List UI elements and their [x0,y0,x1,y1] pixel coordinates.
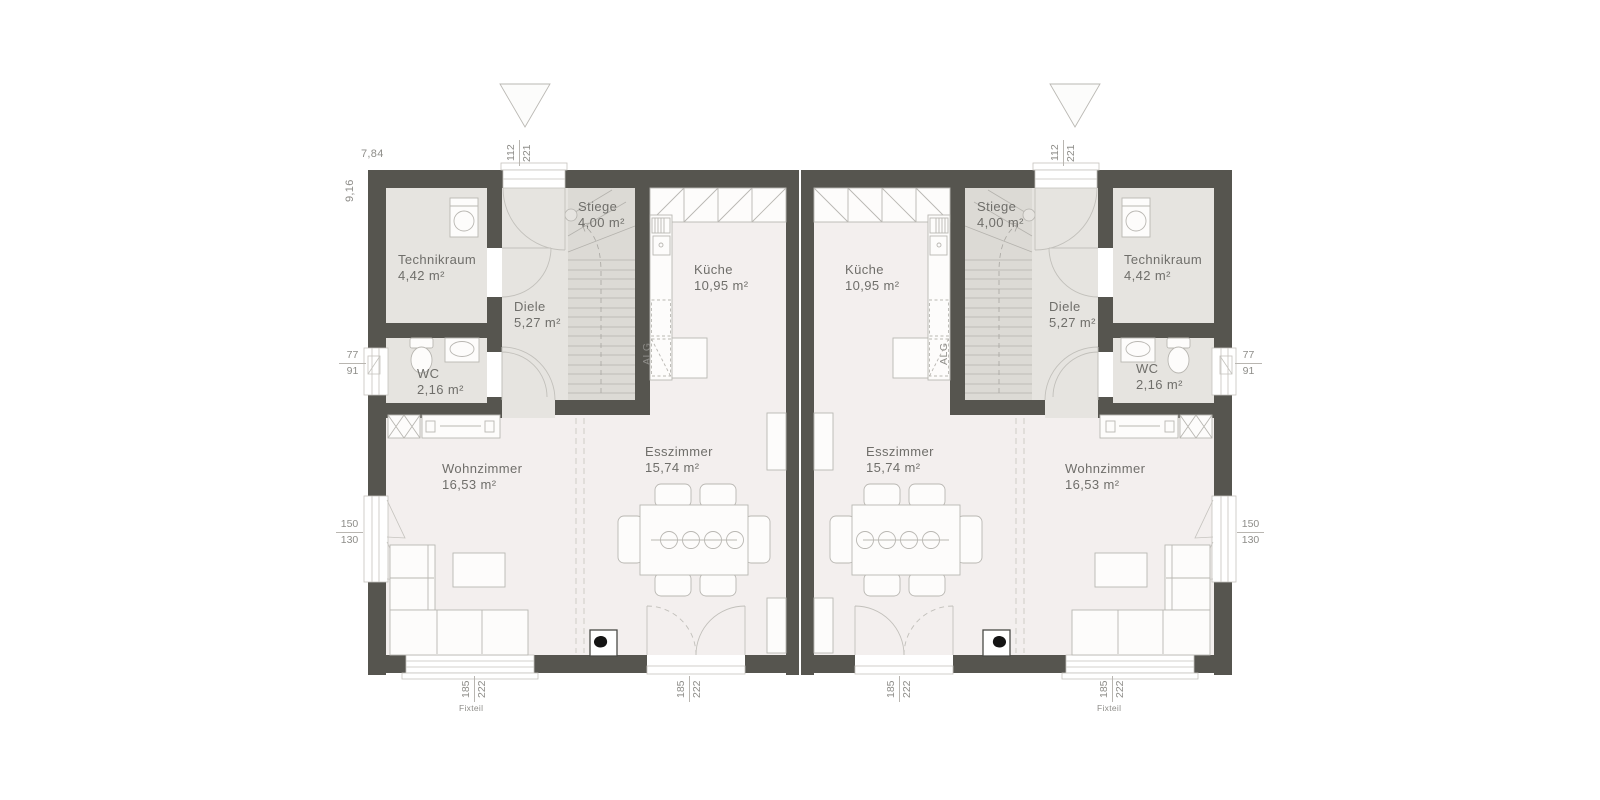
kitchen-counter-label-right: ALG [938,331,950,365]
room-name: Stiege [578,199,625,215]
entrance-marker-triangle-left [500,84,550,127]
room-name: Esszimmer [866,444,934,460]
room-area: 10,95 m² [694,278,749,294]
room-label-stiege-left: Stiege 4,00 m² [578,199,625,230]
fixed-window-note-right: Fixteil [1097,703,1121,713]
room-name: WC [1136,361,1183,377]
dim-terrace-door-left: 185 222 [676,672,703,706]
room-area: 4,42 m² [398,268,476,284]
unit-left [364,163,799,679]
room-name: Esszimmer [645,444,713,460]
room-name: Wohnzimmer [442,461,522,477]
room-area: 5,27 m² [1049,315,1096,331]
room-label-stiege-right: Stiege 4,00 m² [977,199,1024,230]
floor-plan-graphics [0,0,1600,800]
room-area: 4,00 m² [977,215,1024,231]
room-label-technikraum-left: Technikraum 4,42 m² [398,252,476,283]
dim-fixed-window-right: 185 222 [1099,672,1126,706]
dim-entrance-left: 112 221 [506,136,533,170]
dim-divider [689,676,690,702]
unit-right [801,163,1236,679]
dim-wc-window-left: 77 91 [339,349,366,378]
room-name: Technikraum [1124,252,1202,268]
room-area: 2,16 m² [417,382,464,398]
room-name: Küche [694,262,749,278]
room-label-technikraum-right: Technikraum 4,42 m² [1124,252,1202,283]
dim-divider [1237,532,1264,533]
dim-divider [519,140,520,166]
room-area: 10,95 m² [845,278,900,294]
room-area: 15,74 m² [645,460,713,476]
dim-terrace-door-right: 185 222 [886,672,913,706]
dim-divider [1235,363,1262,364]
room-area: 4,00 m² [578,215,625,231]
floor-plan-page: Technikraum 4,42 m² WC 2,16 m² Diele 5,2… [0,0,1600,800]
dim-divider [1112,676,1113,702]
room-label-kueche-left: Küche 10,95 m² [694,262,749,293]
dim-unit-depth: 9,16 [344,164,356,202]
dim-divider [899,676,900,702]
dim-divider [336,532,363,533]
room-area: 2,16 m² [1136,377,1183,393]
room-area: 15,74 m² [866,460,934,476]
room-label-esszimmer-right: Esszimmer 15,74 m² [866,444,934,475]
room-name: Diele [514,299,561,315]
room-area: 16,53 m² [442,477,522,493]
room-label-esszimmer-left: Esszimmer 15,74 m² [645,444,713,475]
room-name: Technikraum [398,252,476,268]
room-area: 16,53 m² [1065,477,1145,493]
room-label-wc-left: WC 2,16 m² [417,366,464,397]
dim-fixed-window-left: 185 222 [461,672,488,706]
kitchen-counter-label-left: ALG [641,331,653,365]
room-name: Diele [1049,299,1096,315]
room-label-wc-right: WC 2,16 m² [1136,361,1183,392]
dim-wc-window-right: 77 91 [1235,349,1262,378]
dim-divider [474,676,475,702]
fixed-window-note-left: Fixteil [459,703,483,713]
dim-divider [339,363,366,364]
room-name: Küche [845,262,900,278]
dim-living-window-left: 150 130 [336,518,363,547]
room-label-wohnzimmer-right: Wohnzimmer 16,53 m² [1065,461,1145,492]
dim-divider [1063,140,1064,166]
dim-living-window-right: 150 130 [1237,518,1264,547]
room-name: Wohnzimmer [1065,461,1145,477]
dim-entrance-right: 112 221 [1050,136,1077,170]
room-label-diele-left: Diele 5,27 m² [514,299,561,330]
room-area: 4,42 m² [1124,268,1202,284]
room-area: 5,27 m² [514,315,561,331]
room-label-wohnzimmer-left: Wohnzimmer 16,53 m² [442,461,522,492]
room-label-diele-right: Diele 5,27 m² [1049,299,1096,330]
entrance-marker-triangle-right [1050,84,1100,127]
room-label-kueche-right: Küche 10,95 m² [845,262,900,293]
room-name: Stiege [977,199,1024,215]
dim-unit-width: 7,84 [361,148,384,160]
room-name: WC [417,366,464,382]
